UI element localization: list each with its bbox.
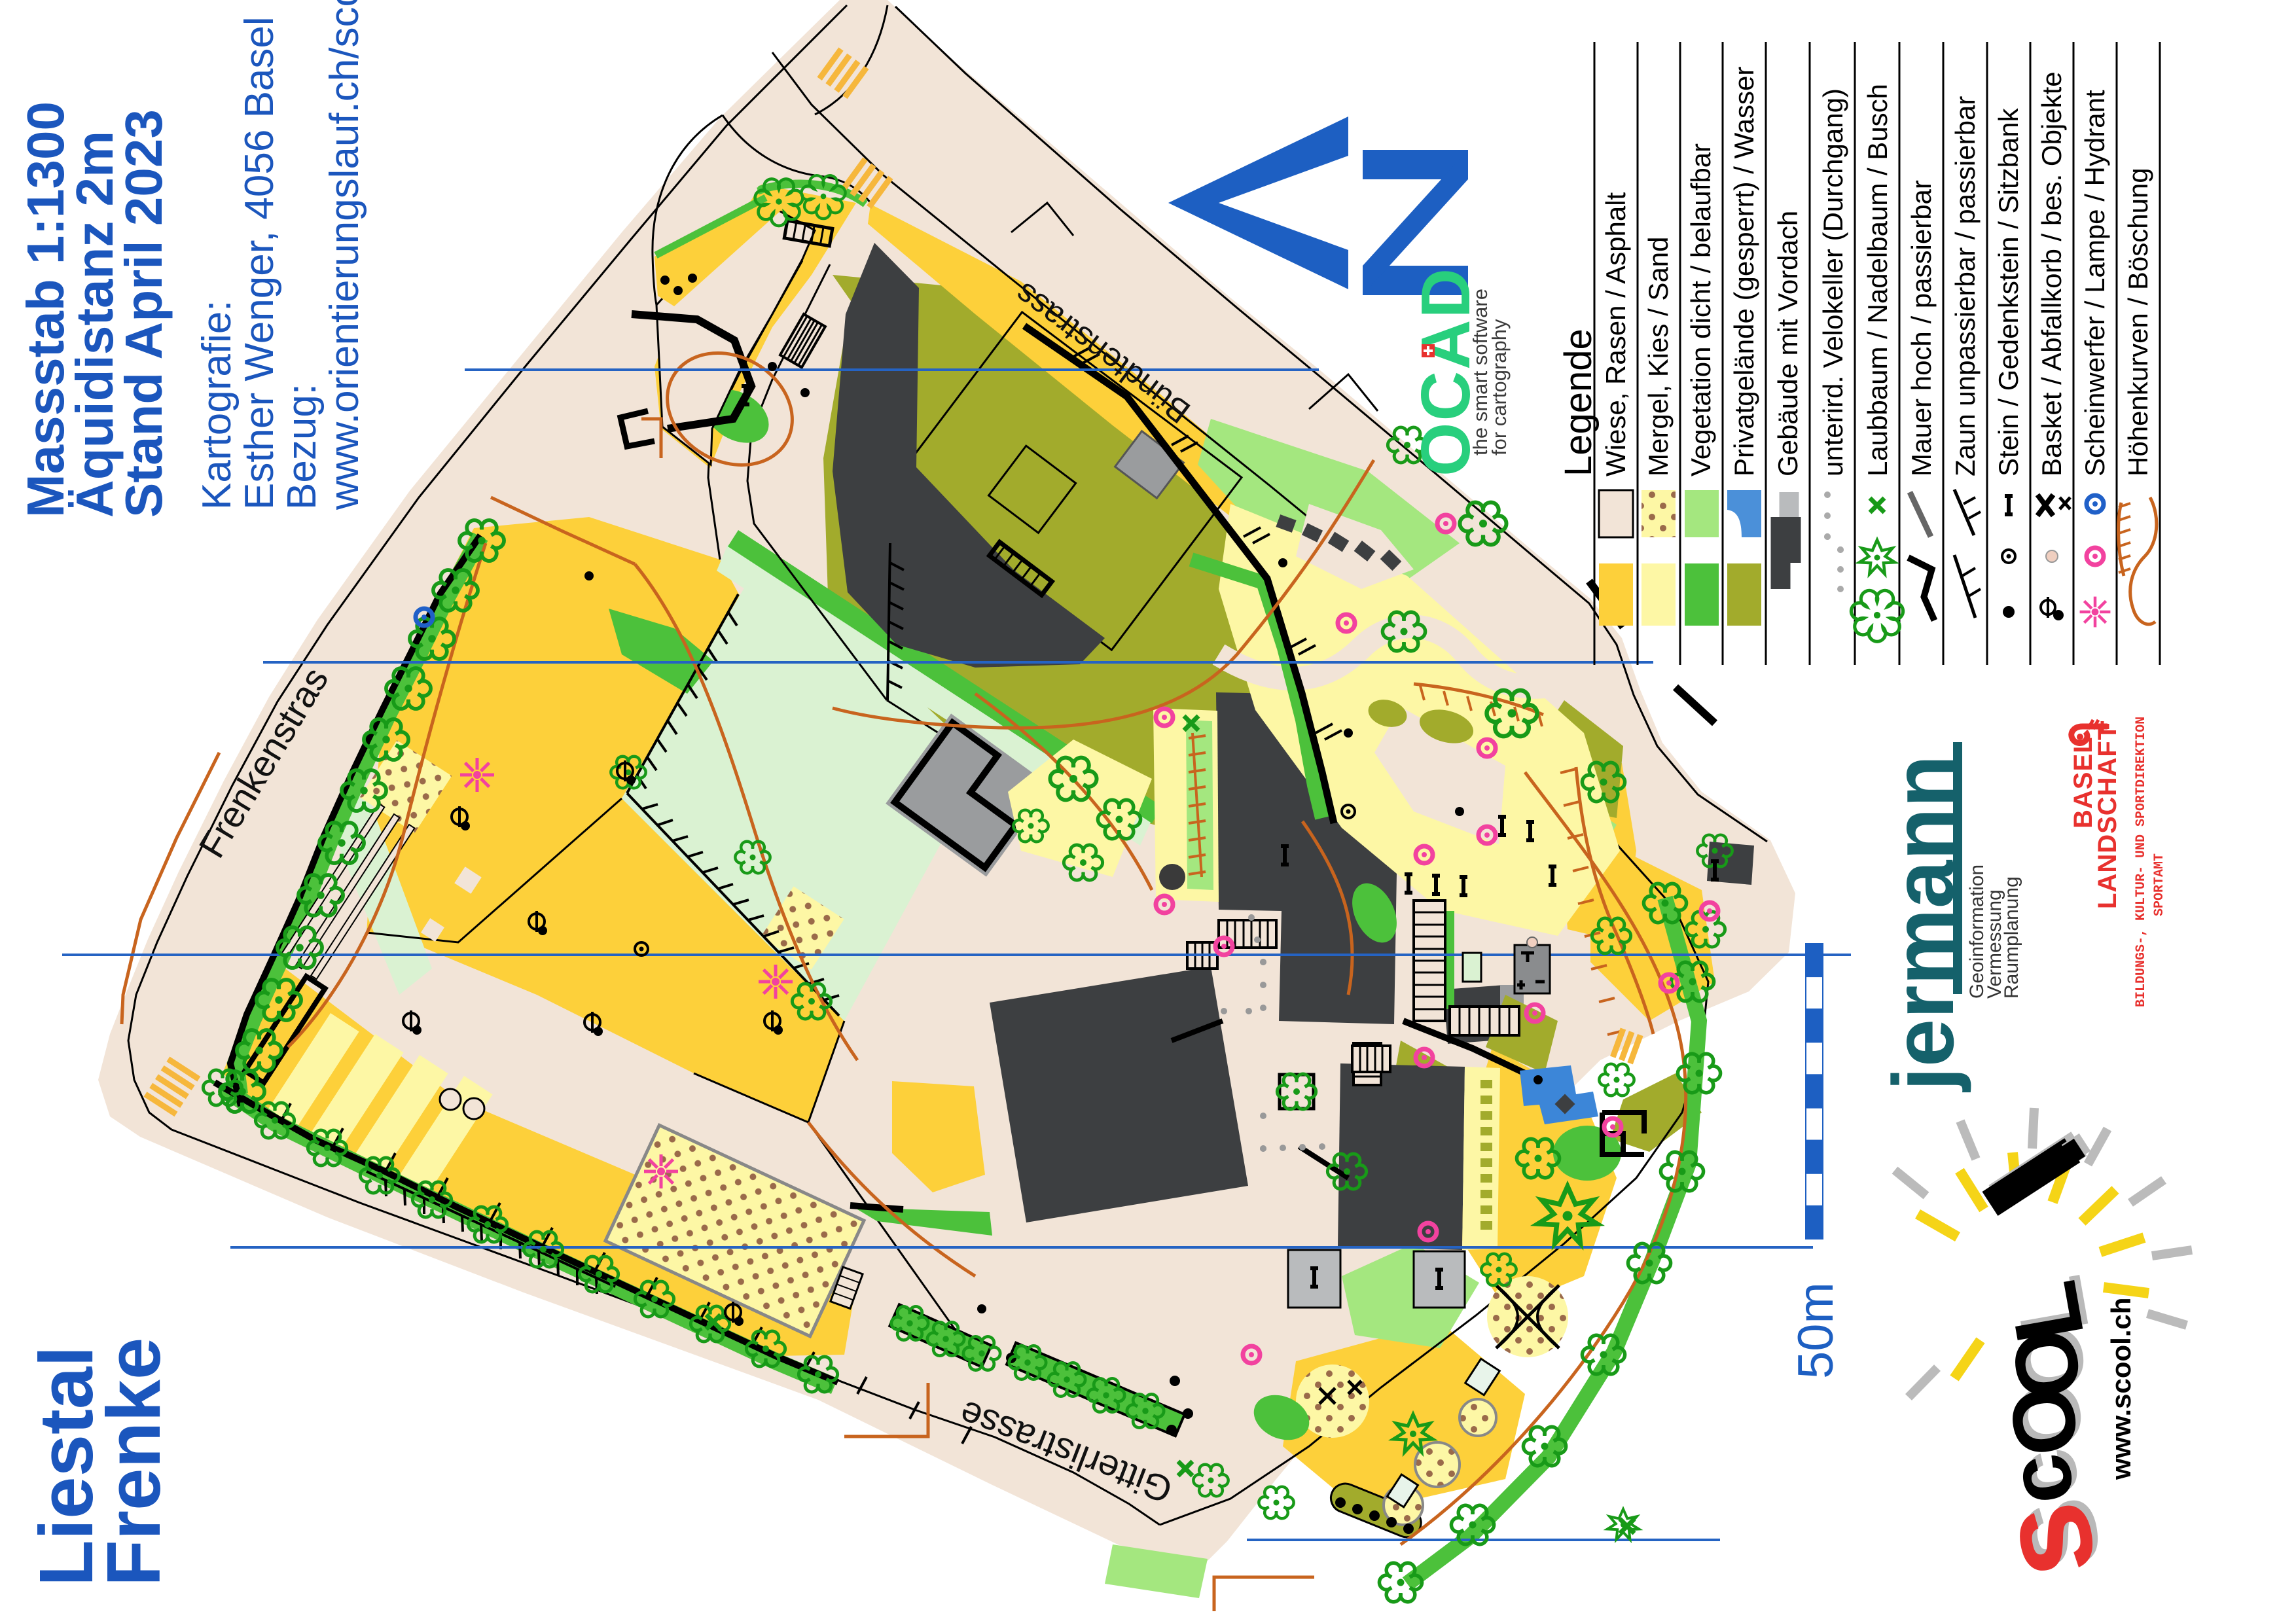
svg-text:unterird. Velokeller (Durchgan: unterird. Velokeller (Durchgang) [1818, 88, 1848, 476]
svg-text:Mauer hoch / passierbar: Mauer hoch / passierbar [1906, 180, 1937, 476]
svg-text:Kartografie:: Kartografie: [194, 300, 240, 510]
svg-text:for cartography: for cartography [1488, 319, 1511, 455]
svg-text:Zaun unpassierbar / passierbar: Zaun unpassierbar / passierbar [1950, 96, 1981, 476]
svg-text:www.orientierungslauf.ch/scool: www.orientierungslauf.ch/scool [322, 0, 367, 510]
svg-text:Stand April 2023: Stand April 2023 [115, 109, 173, 518]
svg-text:Frenke: Frenke [91, 1338, 176, 1586]
svg-text:Gebäude mit Vordach: Gebäude mit Vordach [1772, 211, 1803, 476]
svg-text:Scheinwerfer / Lampe / Hydrant: Scheinwerfer / Lampe / Hydrant [2079, 90, 2110, 476]
svg-text:Vegetation dicht / belaufbar: Vegetation dicht / belaufbar [1685, 143, 1716, 476]
svg-text:Esther Wenger, 4056 Basel: Esther Wenger, 4056 Basel [237, 16, 282, 510]
svg-text:Privatgelände (gesperrt) / Was: Privatgelände (gesperrt) / Wasser [1729, 67, 1759, 476]
svg-text:Stein / Gedenkstein / Sitzbank: Stein / Gedenkstein / Sitzbank [1993, 107, 2024, 476]
svg-text:Wiese, Rasen / Asphalt: Wiese, Rasen / Asphalt [1600, 192, 1631, 476]
svg-text:Höhenkurven / Böschung: Höhenkurven / Böschung [2123, 168, 2153, 476]
svg-text:Raumplanung: Raumplanung [2001, 876, 2022, 999]
svg-text:Mergel, Kies / Sand: Mergel, Kies / Sand [1643, 236, 1674, 476]
svg-text:www.scool.ch: www.scool.ch [2106, 1298, 2136, 1481]
svg-text:Laubbaum / Nadelbaum / Busch: Laubbaum / Nadelbaum / Busch [1862, 84, 1893, 476]
svg-text:BILDUNGS-, KULTUR- UND SPORTDI: BILDUNGS-, KULTUR- UND SPORTDIREKTION [2134, 717, 2149, 1007]
svg-text:Legende: Legende [1557, 329, 1600, 476]
svg-text:50m: 50m [1788, 1282, 1844, 1379]
svg-text:Bezug:: Bezug: [279, 383, 325, 510]
svg-text:Basket / Abfallkorb / bes. Obj: Basket / Abfallkorb / bes. Objekte [2036, 71, 2067, 476]
svg-text:SPORTAMT: SPORTAMT [2152, 853, 2167, 916]
svg-text:LANDSCHAFT: LANDSCHAFT [2093, 724, 2122, 909]
